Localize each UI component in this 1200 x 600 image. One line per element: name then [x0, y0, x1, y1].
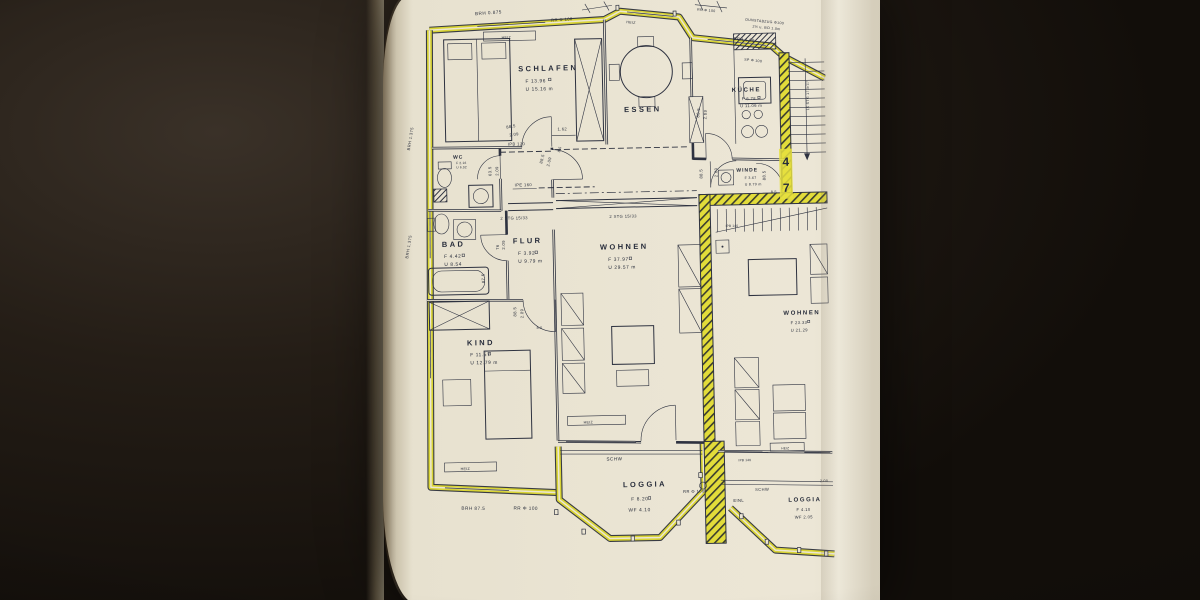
label-schw-loggia: SCHW: [606, 456, 622, 461]
room-label-wohnen2: WOHNEN: [783, 310, 820, 317]
room-label-loggia2: LOGGIA: [788, 497, 821, 504]
room-perim-kueche: U 11.06 m: [740, 103, 762, 108]
hatched-walls: [696, 52, 834, 544]
photo-of-floorplan-page: SCHLAFEN F 13.96 U 15.16 m ESSEN KÜCHE F…: [0, 0, 1200, 600]
label-ipb-140-right: IPB 140: [738, 458, 751, 462]
dim-schlafen-door-w: 88.5: [506, 123, 517, 130]
kind-furniture: [429, 300, 532, 440]
label-schw-right: SCHW: [755, 487, 769, 492]
label-stg-wohnen: 2 STG 15/33: [609, 213, 637, 219]
room-label-bad: BAD: [442, 240, 466, 249]
dim-essen-door-w: 88.5: [538, 153, 545, 164]
label-ipe-160: IPE 160: [515, 182, 533, 187]
room-wf-loggia2: WF 2.05: [795, 514, 814, 519]
dim-essen-door-rest: 8.5: [557, 146, 562, 153]
room-perim-kind: U 12.79 m: [470, 360, 498, 367]
room-label-schlafen: SCHLAFEN: [518, 63, 578, 73]
label-rr100-loggia: RR Φ 100: [683, 489, 705, 494]
washbasin-icon: [453, 219, 475, 239]
room-perim-wohnen2: U 21.29: [791, 327, 809, 332]
room-area-kueche: F 6.78: [742, 96, 756, 101]
book-page-edge: [366, 0, 384, 600]
dim-essen-door-h: 2.09: [545, 156, 552, 167]
label-rr100-kitchen: RR Φ 100: [697, 8, 716, 14]
label-brh-1375-b: BRH 1.375: [404, 234, 413, 258]
bed-icon: [444, 39, 512, 142]
room-area-loggia: F 8.20: [631, 496, 648, 502]
dim-bad-door-h: 2.09: [501, 240, 506, 250]
label-unit-7: 7: [783, 181, 790, 195]
label-ipb-140-corridor: IPB 140: [726, 224, 739, 228]
dim-winde-doorR-w: 88.5: [761, 170, 766, 180]
label-heiz-wohnen: HEIZ: [584, 420, 594, 424]
room-perim-winde: U 8.79 m: [745, 182, 762, 186]
room-label-essen: ESSEN: [624, 104, 662, 114]
dim-162: 1.62: [557, 126, 567, 131]
room-area-flur: F 3.92: [518, 251, 535, 257]
dim-kind-door-w: 88.5: [512, 307, 517, 317]
dim-winde-doorL-h: 2.09: [713, 167, 718, 177]
room-label-wc: WC: [453, 155, 463, 161]
dim-kueche-door-h: 2.09: [702, 109, 708, 119]
floor-plan: SCHLAFEN F 13.96 U 15.16 m ESSEN KÜCHE F…: [399, 0, 835, 565]
dim-bad-door-w: 76: [495, 244, 500, 250]
dim-kind-door-h: 2.09: [519, 308, 524, 318]
label-brh-875: BRH 87.5: [461, 506, 485, 511]
label-heiz-schlafen: HEIZ: [502, 35, 512, 39]
neighbour-furniture: [716, 238, 831, 446]
label-einl: EINL: [733, 498, 744, 503]
floor-plan-svg: SCHLAFEN F 13.96 U 15.16 m ESSEN KÜCHE F…: [383, 0, 880, 600]
dim-200: 2.00: [820, 479, 828, 483]
radiator-icon: [568, 415, 626, 425]
label-heiz-bay: HEIZ: [626, 20, 636, 25]
shaft-icon: [434, 189, 447, 202]
washing-machine-icon: [718, 170, 733, 185]
label-stg-flur: 2 STG 15/33: [500, 215, 528, 221]
room-area-kind: F 11.57: [470, 352, 490, 358]
dimension-labels: 88.5 2.09 1.62 88.5 2.09 8.5 63.5 2.09 7…: [477, 105, 828, 490]
label-dunstabzug: DUNSTABZUG Φ100: [745, 18, 784, 26]
label-rr100-bottom: RR Φ 100: [513, 506, 538, 511]
steps: [508, 198, 697, 211]
room-perim-flur: U 9.79 m: [518, 258, 542, 265]
room-label-loggia: LOGGIA: [623, 479, 667, 489]
room-area-schlafen: F 13.96: [525, 78, 546, 84]
room-label-wohnen: WOHNEN: [600, 242, 649, 252]
dim-wc-door-h: 2.09: [494, 166, 499, 176]
radiator-icon: [444, 462, 496, 472]
dim-winde-doorR-rest: 8.5: [771, 190, 777, 194]
doors: [476, 112, 788, 444]
room-perim-wohnen: U 29.57 m: [608, 264, 636, 271]
room-area-wohnen2: F 23.33: [791, 320, 808, 325]
corridor-stairs: [715, 207, 827, 232]
floorplan-paper: SCHLAFEN F 13.96 U 15.16 m ESSEN KÜCHE F…: [383, 0, 880, 600]
dim-schlafen-door-h: 2.09: [509, 131, 520, 138]
label-heiz-right: HEIZ: [781, 446, 789, 450]
room-perim-bad: U 8.54: [444, 262, 462, 268]
room-label-flur: FLUR: [513, 236, 543, 246]
dim-winde-doorL-w: 88.5: [698, 169, 703, 179]
room-label-winde: WINDE: [736, 167, 758, 173]
label-sp-100: SP Φ 100: [744, 58, 762, 64]
room-wf-loggia: WF 4.10: [628, 507, 650, 513]
label-heiz-kind: HEIZ: [461, 467, 471, 471]
label-ipb-120: IPB 120: [508, 141, 526, 146]
room-area-winde: F 3.67: [745, 176, 757, 180]
room-perim-schlafen: U 15.16 m: [526, 86, 554, 93]
windows: [423, 9, 775, 492]
room-label-kueche: KÜCHE: [732, 86, 761, 94]
wardrobe-icon: [575, 39, 604, 142]
dim-wc-door-w: 63.5: [487, 166, 492, 176]
room-label-kind: KIND: [467, 338, 495, 348]
label-stg-stair: 15 STG 17.5/27: [806, 81, 811, 111]
room-area-bad: F 4.42: [444, 254, 461, 260]
label-brh-1375-a: BRH 1.375: [406, 126, 415, 150]
room-area-loggia2: F 4.10: [796, 507, 810, 512]
interior-walls: [421, 15, 833, 494]
room-area-wohnen: F 37.97: [608, 257, 629, 263]
dim-kueche-door-w: 88.5: [695, 107, 701, 117]
washbasin-icon: [469, 185, 493, 207]
toilet-icon: [437, 162, 452, 188]
dim-kind-door-rest: 8.5: [537, 326, 543, 330]
label-brh-0875: BRH 0.875: [475, 9, 502, 16]
label-dunstabzug2: 2½ u. BO 1.0m: [752, 24, 780, 31]
dining-table-icon: [609, 36, 693, 108]
dim-tub: 87.5: [480, 273, 485, 283]
room-perim-wc: U 6.02: [456, 165, 467, 169]
label-unit-4: 4: [782, 155, 789, 169]
